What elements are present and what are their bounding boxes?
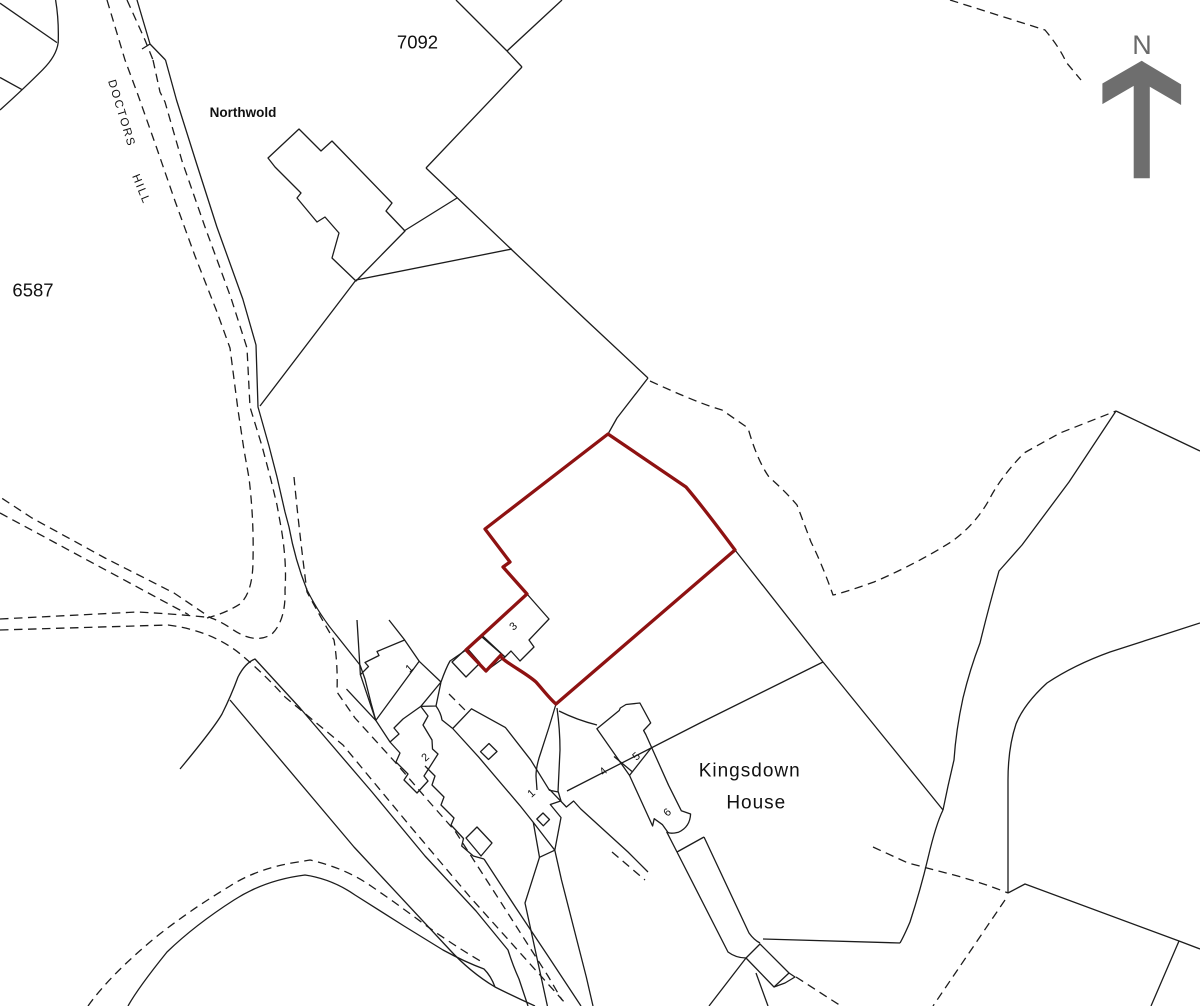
svg-text:Northwold: Northwold bbox=[210, 105, 277, 120]
svg-text:6587: 6587 bbox=[12, 280, 53, 301]
svg-text:7092: 7092 bbox=[397, 32, 438, 53]
svg-text:Kingsdown: Kingsdown bbox=[699, 761, 801, 782]
svg-text:N: N bbox=[1132, 30, 1152, 60]
svg-text:House: House bbox=[726, 793, 786, 814]
